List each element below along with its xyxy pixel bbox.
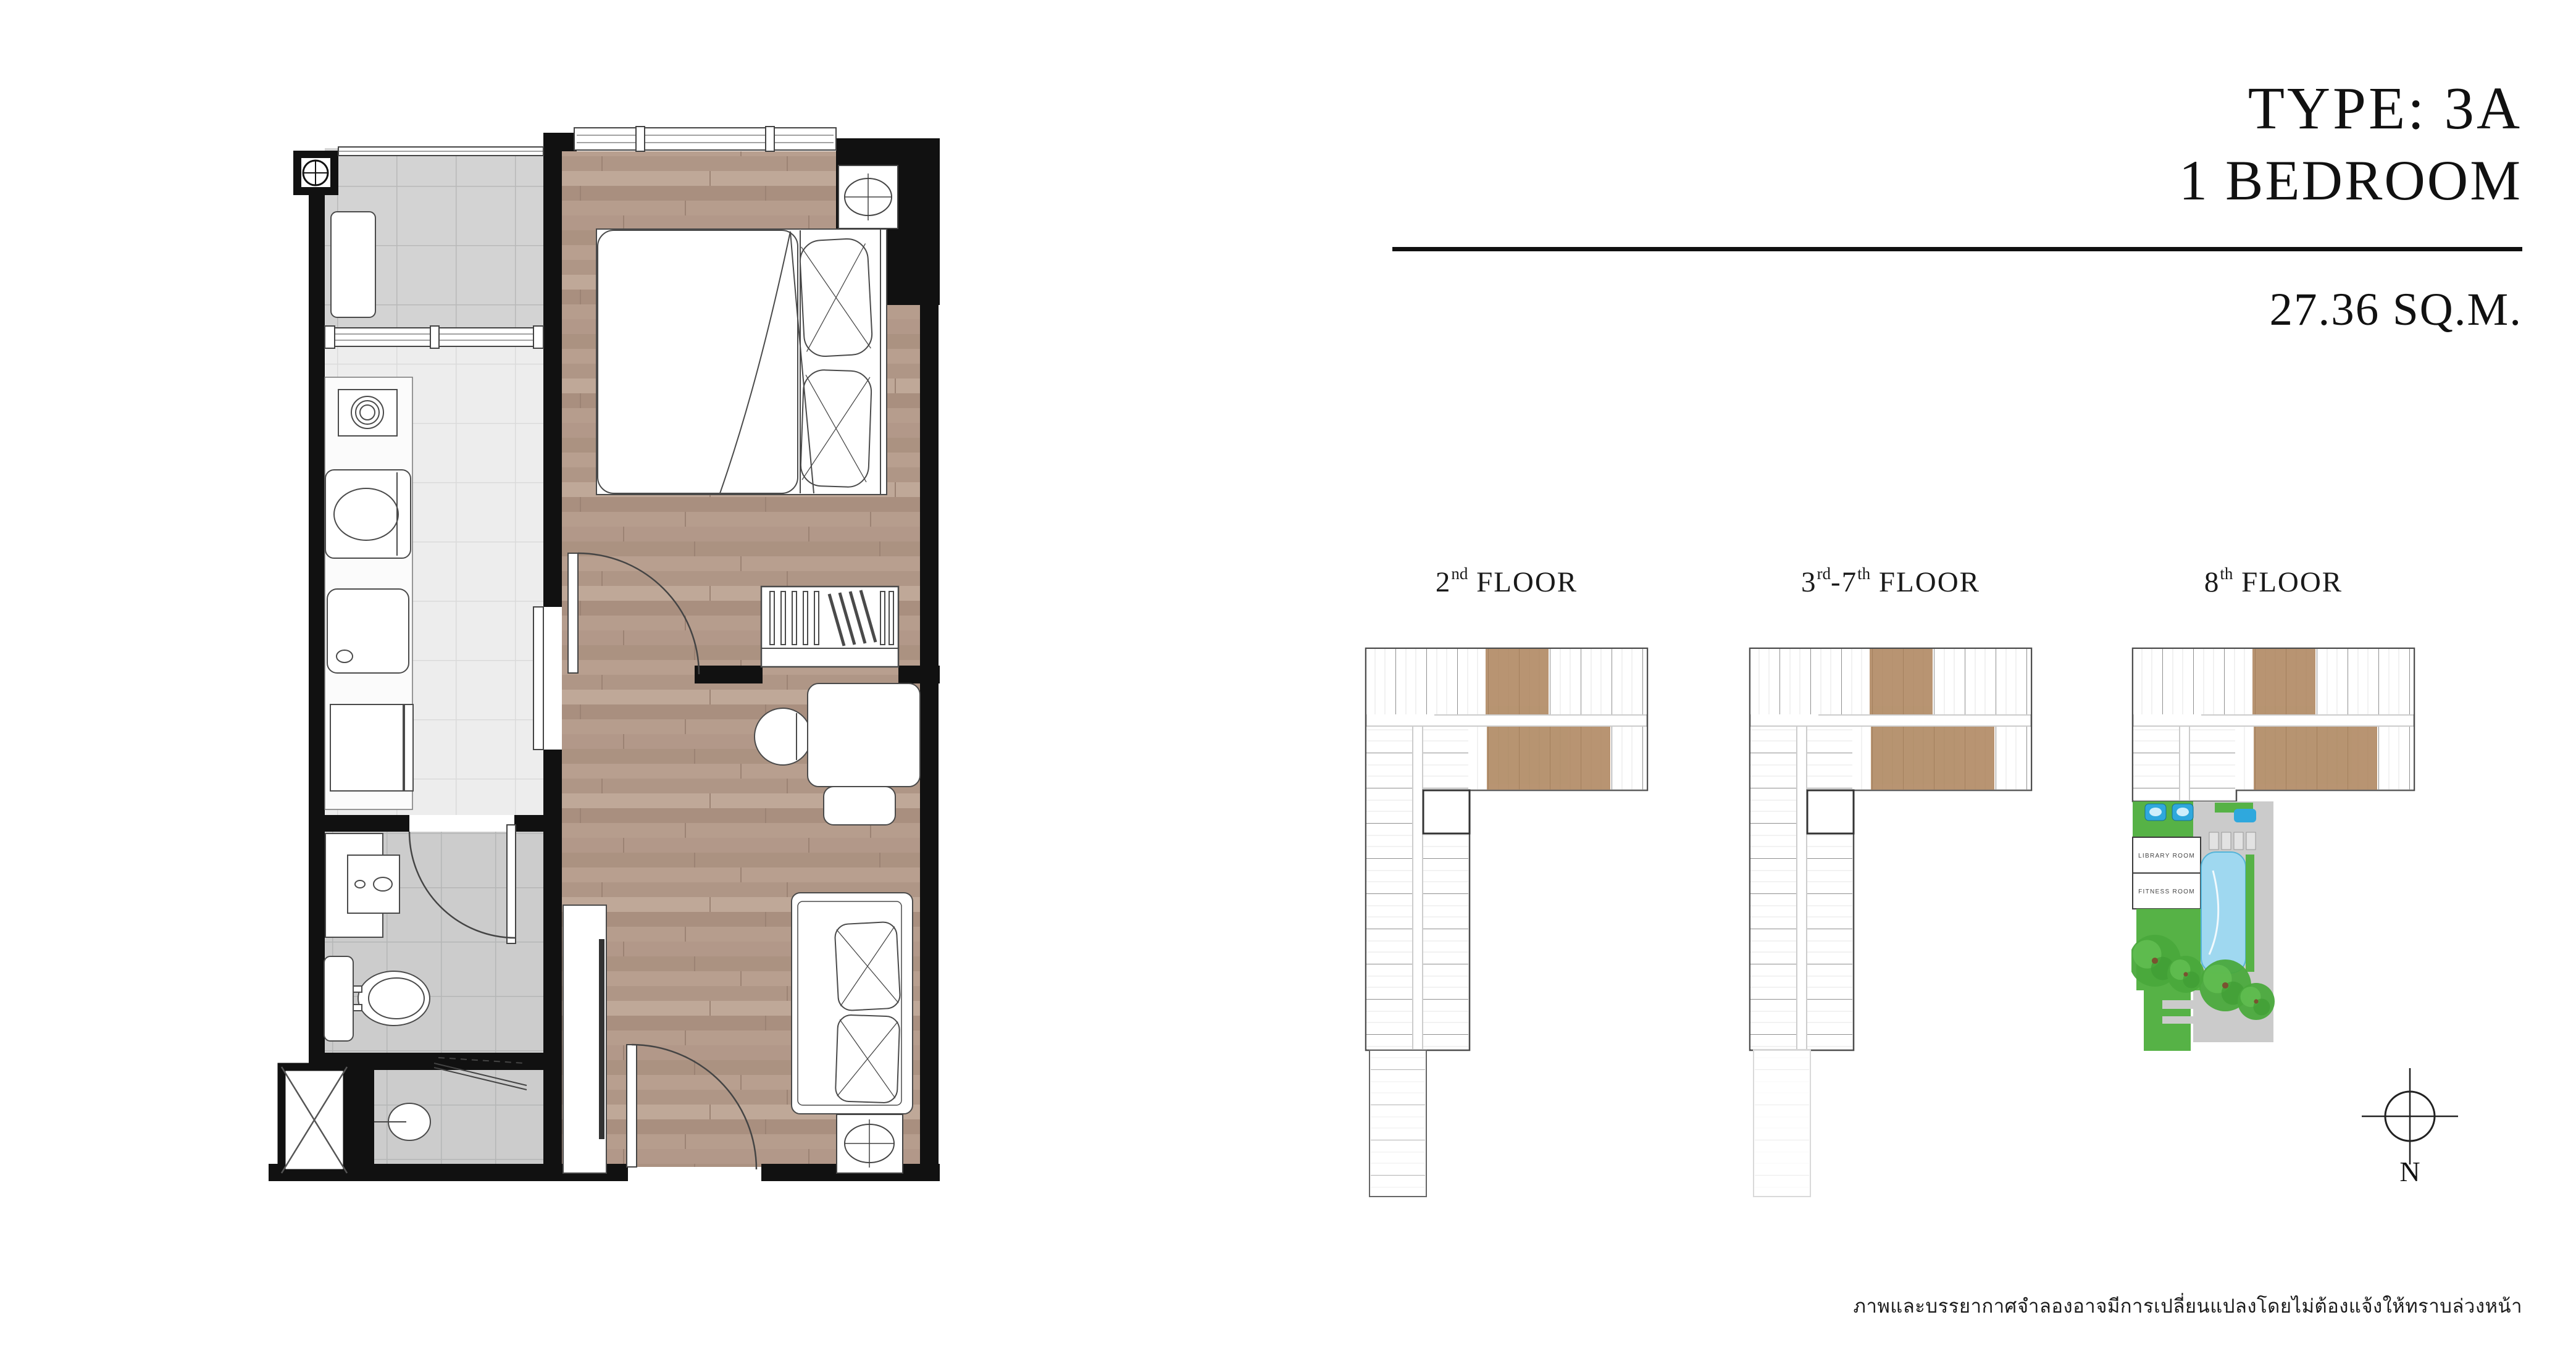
bedroom-window	[574, 127, 836, 151]
sofa-pillow	[834, 921, 900, 1011]
tree-icon	[2167, 956, 2204, 993]
balcony-window	[325, 326, 543, 348]
compass: N	[2346, 1053, 2474, 1186]
kids-pool	[2234, 809, 2256, 822]
desk	[808, 683, 920, 787]
sofa	[792, 893, 913, 1114]
pool-lounger	[2234, 832, 2243, 850]
elevator-shaft	[282, 1067, 347, 1173]
floorplan-3rd-7th-floor	[1749, 647, 2033, 1200]
stove	[338, 390, 397, 436]
washing-machine	[327, 589, 409, 673]
unit-area: 27.36 SQ.M.	[1287, 283, 2522, 336]
amenity-deck: LIBRARY ROOM FITNESS ROOM	[2131, 801, 2275, 1051]
ac-condenser	[331, 212, 375, 317]
headboard	[880, 229, 887, 495]
floorplan-2nd-floor	[1365, 647, 1649, 1200]
desk-pedestal	[824, 787, 895, 825]
refrigerator	[330, 704, 413, 791]
unit-bedroom-subtitle: 1 BEDROOM	[1287, 144, 2522, 216]
pool-lounger	[2222, 832, 2231, 850]
wardrobe	[761, 587, 898, 667]
sliding-door	[533, 607, 562, 750]
unit-type-title: TYPE: 3A	[1287, 73, 2522, 144]
kitchen-sink	[325, 470, 411, 558]
tv-console	[563, 905, 606, 1173]
disclaimer-text: ภาพและบรรยากาศจำลองอาจมีการเปลี่ยนแปลงโด…	[1854, 1290, 2522, 1321]
pillow	[799, 238, 873, 357]
compass-north-label: N	[2399, 1156, 2420, 1186]
floor-label-2nd: 2nd FLOOR	[1365, 566, 1649, 603]
fitness-room-label: FITNESS ROOM	[2138, 888, 2195, 895]
pool-lounger	[2209, 832, 2218, 850]
lower-wing	[1370, 1050, 1426, 1197]
pool-lounger	[2246, 832, 2256, 850]
balcony-railing	[338, 147, 543, 156]
header-divider	[1392, 247, 2522, 251]
floor-label-8th: 8th FLOOR	[2131, 566, 2415, 603]
stair-core	[1807, 790, 1854, 834]
bed	[596, 229, 887, 495]
column-marker	[293, 151, 338, 195]
lower-wing	[1754, 1050, 1810, 1197]
sofa-pillow	[835, 1014, 900, 1103]
floorplan-8th-floor: LIBRARY ROOM FITNESS ROOM	[2131, 647, 2415, 1055]
pillow	[800, 369, 872, 488]
north-arrow-icon	[2362, 1068, 2458, 1164]
floor-label-3rd-7th: 3rd-7th FLOOR	[1749, 566, 2033, 603]
header: TYPE: 3A 1 BEDROOM 27.36 SQ.M.	[1287, 73, 2522, 336]
chair	[755, 708, 811, 765]
stair-core	[1423, 790, 1470, 834]
library-room-label: LIBRARY ROOM	[2138, 853, 2195, 859]
tree-icon	[2238, 983, 2275, 1020]
unit-floor-plan	[266, 120, 945, 1182]
swimming-pool	[2201, 852, 2246, 973]
ac-unit-bedroom	[838, 165, 898, 228]
ac-unit-living	[837, 1114, 903, 1173]
